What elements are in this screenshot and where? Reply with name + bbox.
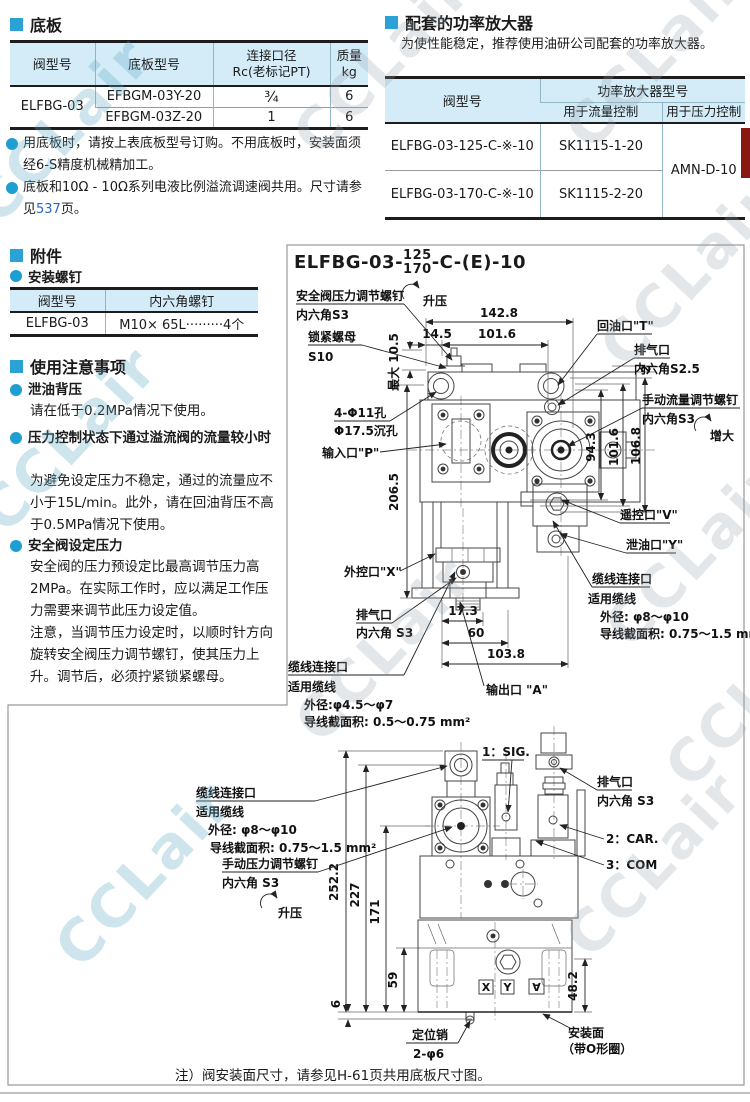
increase-arrow-icon <box>694 417 711 431</box>
label-mounting-face: 安装面 <box>568 1025 604 1040</box>
label-lock-nut: 锁紧螺母 <box>308 329 356 344</box>
dim-106-8: 106.8 <box>629 427 643 465</box>
dim-14-5: 14.5 <box>422 327 452 341</box>
label-pressure-hex-s3: 内六角 S3 <box>222 875 279 890</box>
dim-227: 227 <box>348 882 362 907</box>
rise-arrow-icon <box>402 284 419 299</box>
rise-arrow-icon <box>260 894 277 908</box>
label-cable-section: 导线截面积: 0.75～1.5 mm² <box>210 840 376 855</box>
label-cable-applicable: 适用缆线 <box>196 804 244 819</box>
label-1-sig: 1：SIG. <box>482 745 530 759</box>
port-symbol-y: Y <box>503 981 513 994</box>
label-return-port-t: 回油口"T" <box>597 318 654 333</box>
label-vent-port: 排气口 <box>356 607 392 622</box>
dim-max-10-5: 最大 10.5 <box>386 333 401 391</box>
label-cable1-port: 缆线连接口 <box>288 659 348 674</box>
label-vent2-hex: 内六角S2.5 <box>634 361 700 376</box>
label-hex-s3: 内六角S3 <box>296 307 349 322</box>
label-input-port-p: 输入口"P" <box>322 445 379 460</box>
dim-103-8: 103.8 <box>487 647 525 661</box>
label-manual-pressure-screw: 手动压力调节螺钉 <box>222 856 318 871</box>
port-symbol-x: X <box>482 981 491 994</box>
label-cable1-applicable: 适用缆线 <box>288 679 336 694</box>
label-rise: 升压 <box>423 293 447 308</box>
label-2-car: 2：CAR. <box>606 832 658 846</box>
drawing-2-valve-side-view: X Y ∀ 252.2 227 171 59 6 <box>196 726 658 1061</box>
label-cable2-section: 导线截面积: 0.75～1.5 mm² <box>600 626 750 641</box>
label-cable2-port: 缆线连接口 <box>592 571 652 586</box>
label-remote-port-v: 遥控口"V" <box>620 507 678 522</box>
label-vent-hex-s3: 内六角 S3 <box>356 625 413 640</box>
label-oring: （带O形圈） <box>562 1041 632 1056</box>
label-external-port-x: 外控口"X" <box>344 564 402 579</box>
label-cable1-od: 外径:φ4.5～φ7 <box>304 697 393 712</box>
dim-48-2: 48.2 <box>566 971 580 1001</box>
label-locating-pin: 定位销 <box>412 1027 448 1042</box>
label-cable1-section: 导线截面积: 0.5～0.75 mm² <box>304 714 470 729</box>
label-pin-size: 2-φ6 <box>413 1047 444 1061</box>
label-drain-port-y: 泄油口"Y" <box>626 537 683 552</box>
label-s10: S10 <box>308 350 333 364</box>
label-cable2-applicable: 适用缆线 <box>588 591 636 606</box>
label-manual-flow-screw: 手动流量调节螺钉 <box>642 392 738 407</box>
label-cable2-od: 外径: φ8～φ10 <box>600 609 689 624</box>
label-flow-hex-s3: 内六角S3 <box>642 411 695 426</box>
catalog-page: 底板 阀型号 底板型号 连接口径Rc(老标记PT) 质量kg ELFB <box>0 0 750 1102</box>
dim-101-6b: 101.6 <box>607 428 621 466</box>
label-holes-1: 4-Φ11孔 <box>334 406 386 420</box>
label-holes-2: Φ17.5沉孔 <box>334 423 398 438</box>
label-cable-port: 缆线连接口 <box>196 785 256 800</box>
drawing-1-valve-front-view: 142.8 14.5 101.6 最大 10.5 206.5 94.3 10 <box>288 284 750 729</box>
label-increase: 增大 <box>710 428 734 443</box>
label-rise: 升压 <box>278 905 302 920</box>
dim-142-8: 142.8 <box>480 306 518 320</box>
label-3-com: 3：COM <box>606 858 657 872</box>
label-vent2-port: 排气口 <box>634 342 670 357</box>
label-cable-od: 外径: φ8～φ10 <box>208 822 297 837</box>
mounting-note: 注）阀安装面尺寸，请参见H-61页共用底板尺寸图。 <box>175 1064 491 1084</box>
dim-206-5: 206.5 <box>387 473 401 511</box>
label-output-port-a: 输出口 "A" <box>486 682 548 697</box>
dim-101-6a: 101.6 <box>478 327 516 341</box>
dim-171: 171 <box>368 899 382 924</box>
port-symbol-a: ∀ <box>532 981 541 994</box>
label-vent-port: 排气口 <box>597 774 633 789</box>
dim-6: 6 <box>329 1000 343 1008</box>
technical-drawings: 142.8 14.5 101.6 最大 10.5 206.5 94.3 10 <box>0 0 750 1102</box>
label-safety-valve-screw: 安全阀压力调节螺钉 <box>296 288 404 303</box>
dim-59: 59 <box>386 972 400 989</box>
label-vent-hex-s3: 内六角 S3 <box>597 793 654 808</box>
